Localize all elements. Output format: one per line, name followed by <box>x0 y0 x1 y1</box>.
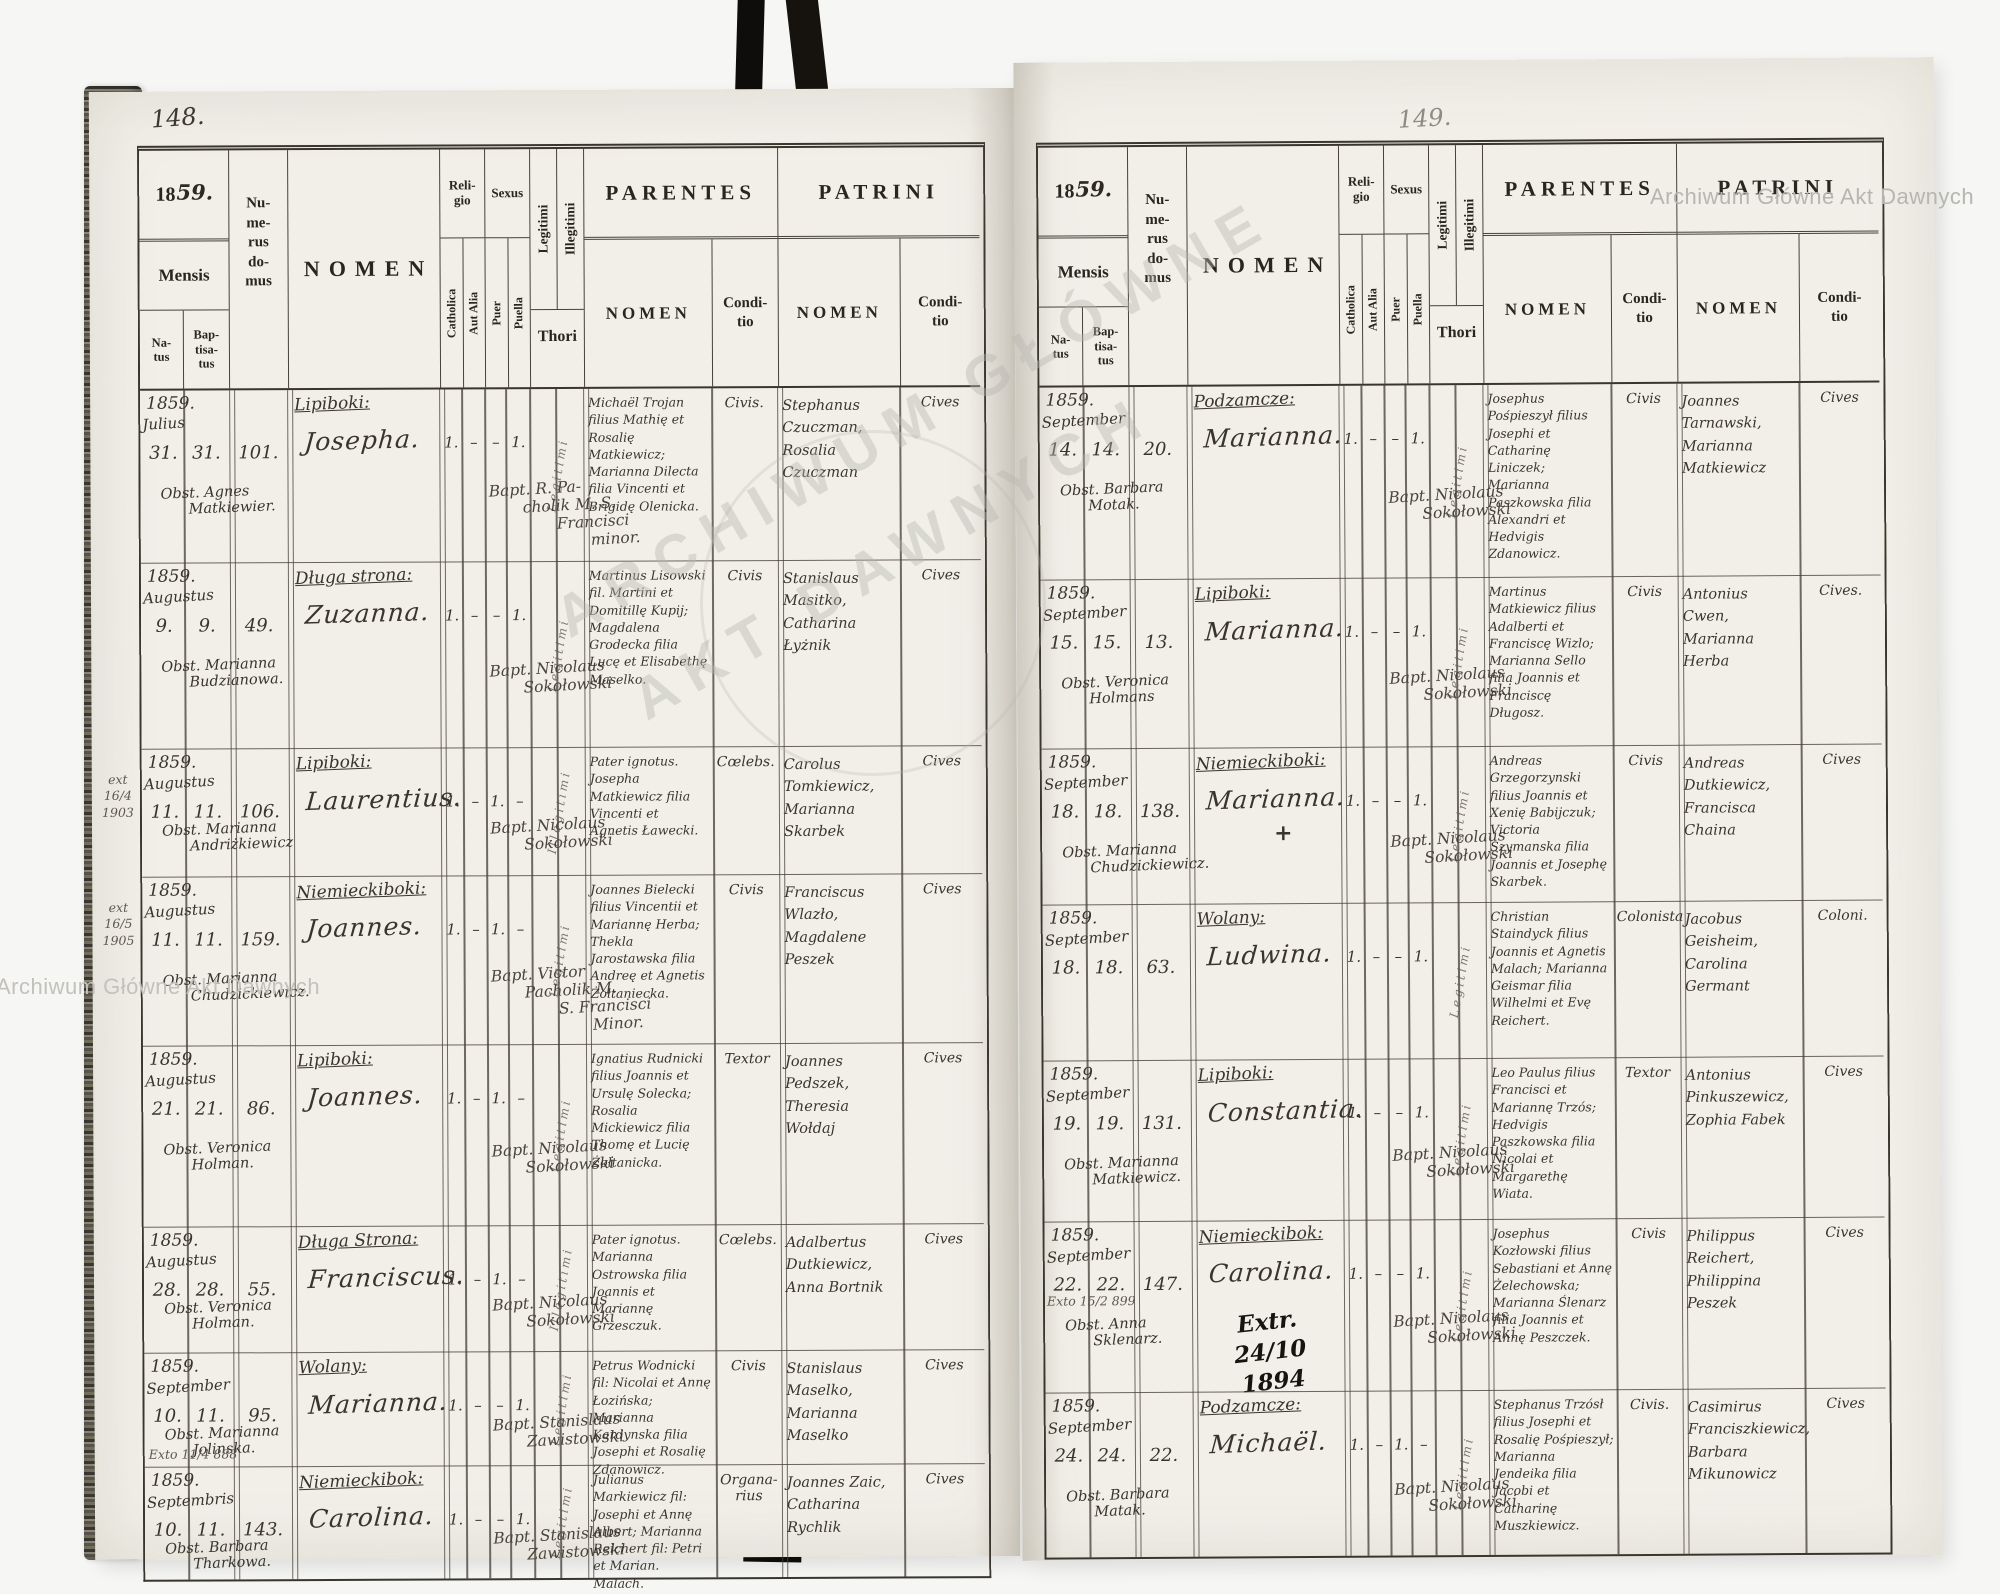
locality-name: Lipiboki: <box>297 1048 373 1071</box>
mark-aut-alia: – <box>463 606 486 624</box>
header-parentes-conditio: Condi-tio <box>1611 235 1677 382</box>
right-page: 149. 1859. Mensis Na-tus Bap-tisa-tus Nu… <box>1013 57 1942 1561</box>
midwife-note: Obst. MariannaMatkiewicz. <box>1064 1152 1294 1185</box>
header-thori: Thori <box>1430 306 1483 383</box>
mark-puella: – <box>510 1270 534 1288</box>
header-year: 1859. <box>139 150 228 241</box>
mark-puella: 1. <box>507 606 531 624</box>
midwife-note: Obst. BarbaraTharkowa. <box>165 1537 395 1570</box>
natus-day: 15. <box>1044 632 1084 653</box>
godparents-condition: Cives <box>908 1357 980 1373</box>
parents-names: Petrus Wodnicki fil: Nicolai et Annę Łoz… <box>592 1356 713 1477</box>
parents-names: Martinus Lisowski fil. Martini et Domiti… <box>589 566 710 687</box>
godparents-names: Stephanus Czuczman, Rosalia Czuczman <box>782 395 896 485</box>
parents-condition: Civis <box>1616 753 1676 769</box>
mark-puella: – <box>508 792 532 810</box>
header-parentes-nomen: NOMEN <box>584 239 713 387</box>
header-patrini-conditio: Condi-tio <box>900 238 980 385</box>
scanned-register-photo: { "document_title": "Parish baptismal re… <box>0 0 2000 1560</box>
mark-puer: – <box>1388 947 1409 965</box>
mark-catholica: 1. <box>445 1510 467 1528</box>
header-sexus: Sexus Puer Puella <box>484 149 530 387</box>
header-numerus-domus: Nu-me- rusdo- mus <box>1128 147 1187 385</box>
entry-month: September <box>1043 771 1127 794</box>
header-year-handwritten: 59. <box>1075 176 1112 201</box>
house-number: 13. <box>1132 632 1186 653</box>
header-natus: Na-tus <box>1039 307 1082 385</box>
entry-month: September <box>1046 1244 1130 1267</box>
register-row: 1859.September18.18.138.Niemieckiboki:Ma… <box>1042 744 1883 905</box>
header-puer: Puer <box>485 238 507 387</box>
register-row: ext16/419031859.Augustus11.11.106.Lipibo… <box>142 745 983 877</box>
header-parentes-conditio: Condi-tio <box>712 239 778 386</box>
entry-year: 1859. <box>1050 1064 1099 1084</box>
mark-catholica: 1. <box>1343 948 1365 966</box>
header-religio: Reli-gio Catholica Aut Alia <box>439 149 485 387</box>
child-name: Marianna. <box>1203 420 1344 454</box>
page-number-right: 149. <box>1397 103 1452 134</box>
godparents-condition: Cives <box>1808 1064 1880 1080</box>
godparents-condition: Cives <box>1810 1396 1882 1412</box>
parents-names: Stephanus Trzósł filius Josephi et Rosal… <box>1494 1395 1615 1534</box>
register-row: 1859.September15.15.13.Lipiboki:Marianna… <box>1041 575 1882 749</box>
entry-year: 1859. <box>148 881 197 901</box>
mark-puer: 1. <box>1391 1435 1412 1453</box>
mark-puella: 1. <box>1408 791 1432 809</box>
godparents-condition: Cives <box>909 1471 981 1487</box>
locality-name: Niemieckibok: <box>1198 1223 1323 1248</box>
header-illegitimi: Illegitimi <box>1455 145 1483 305</box>
mark-puer: – <box>1385 429 1406 447</box>
mark-aut-alia: – <box>462 433 485 451</box>
archive-extract-note: ext16/51905 <box>96 900 140 949</box>
parents-names: Josephus Pośpieszył filius Josephi et Ca… <box>1487 389 1608 562</box>
godparents-condition: Cives <box>907 1050 979 1066</box>
mark-puer: – <box>485 433 506 451</box>
parents-condition: Civis <box>1613 391 1673 407</box>
register-body: 1859.September14.14.20.Podzamcze:Mariann… <box>1039 383 1886 1558</box>
parents-names: Pater ignotus. Marianna Ostrowska filia … <box>592 1230 712 1334</box>
locality-name: Niemieckiboki: <box>1195 750 1326 775</box>
entry-year: 1859. <box>148 753 197 773</box>
entry-year: 1859. <box>1047 583 1096 603</box>
house-number: 159. <box>233 929 287 950</box>
child-name: Michaël. <box>1209 1426 1328 1459</box>
child-name: Carolina. <box>1208 1255 1335 1288</box>
entry-year: 1859. <box>1048 752 1097 772</box>
entry-year: 1859. <box>1045 390 1094 410</box>
baptisatus-day: 11. <box>187 929 229 950</box>
natus-day: 31. <box>143 443 183 464</box>
child-name: Marianna. <box>1205 782 1346 816</box>
mark-aut-alia: – <box>464 920 487 938</box>
parents-condition: Cœlebs. <box>718 1232 778 1248</box>
mark-puella: 1. <box>1409 947 1433 965</box>
entry-year: 1859. <box>1051 1225 1100 1245</box>
baptisatus-day: 22. <box>1090 1274 1132 1295</box>
mark-puella: – <box>509 1089 533 1107</box>
locality-name: Niemieckibok: <box>299 1468 424 1493</box>
godparents-names: Adalbertus Dutkiewicz, Anna Bortnik <box>786 1231 900 1299</box>
parents-condition: Organa- rius <box>719 1472 779 1504</box>
header-patrini: PATRINI NOMEN Condi-tio <box>1676 143 1879 382</box>
locality-name: Podzamcze: <box>1199 1394 1301 1418</box>
page-number-left: 148. <box>150 102 205 134</box>
mark-aut-alia: – <box>464 792 487 810</box>
child-name: Marianna. <box>307 1387 449 1420</box>
godparents-names: Franciscus Wlazło, Magdalene Peszek <box>784 882 898 972</box>
mark-catholica: 1. <box>441 606 463 624</box>
midwife-note: Obst. MariannaBudzianowa. <box>161 655 391 688</box>
mark-catholica: 1. <box>1342 792 1364 810</box>
mark-aut-alia: – <box>466 1270 489 1288</box>
locality-name: Lipiboki: <box>295 751 371 774</box>
parents-names: Julianus Markiewicz fil: Josephi et Annę… <box>593 1470 714 1591</box>
entry-month: Julius <box>142 414 186 434</box>
baptisatus-day: 21. <box>188 1098 230 1119</box>
godparents-names: Casimirus Franciszkiewicz, Barbara Mikun… <box>1688 1396 1803 1487</box>
entry-year: 1859. <box>151 1471 200 1491</box>
godparents-condition: Cives <box>906 753 978 769</box>
header-parentes: PARENTES NOMEN Condi-tio <box>1482 144 1677 383</box>
header-parentes: PARENTES NOMEN Condi-tio <box>583 148 778 387</box>
natus-day: 14. <box>1043 439 1083 460</box>
house-number: 101. <box>231 442 285 463</box>
mark-aut-alia: – <box>466 1396 489 1414</box>
mark-catholica: 1. <box>1344 1104 1366 1122</box>
parents-condition: Civis <box>1619 1226 1679 1242</box>
mark-catholica: 1. <box>1341 623 1363 641</box>
baptism-register-table-right: 1859. Mensis Na-tus Bap-tisa-tus Nu-me- … <box>1036 138 1893 1560</box>
entry-month: September <box>1041 409 1125 432</box>
godparents-names: Antonius Pinkuszewicz, Zophia Fabek <box>1686 1064 1800 1132</box>
header-puer: Puer <box>1384 234 1406 383</box>
natus-day: 18. <box>1045 801 1085 822</box>
header-puella: Puella <box>507 238 530 387</box>
entry-year: 1859. <box>1052 1396 1101 1416</box>
mark-puella: 1. <box>1407 622 1431 640</box>
parents-condition: Civis <box>716 882 776 898</box>
child-name: Ludwina. <box>1206 938 1333 971</box>
entry-year: 1859. <box>150 1357 199 1377</box>
house-number: 86. <box>234 1098 288 1119</box>
mark-catholica: 1. <box>1340 430 1362 448</box>
child-name: Josepha. <box>303 424 421 457</box>
natus-day: 11. <box>145 930 185 951</box>
register-row: 1859.Augustus28.28.55.Długa Strona:Franc… <box>144 1223 985 1353</box>
mark-puer: – <box>486 606 507 624</box>
parents-names: Pater ignotus. Josepha Matkiewicz filia … <box>590 752 710 839</box>
locality-name: Wolany: <box>1196 907 1265 930</box>
house-number: 22. <box>1137 1445 1191 1466</box>
locality-name: Długa strona: <box>295 565 413 590</box>
entry-year: 1859. <box>150 1231 199 1251</box>
entry-month: September <box>1045 1083 1129 1106</box>
legitimacy-note: Legitimi <box>1433 903 1488 1058</box>
baptisatus-day: 14. <box>1085 439 1127 460</box>
godparents-condition: Cives <box>1803 390 1875 406</box>
header-legitimi: Legitimi <box>530 149 557 309</box>
child-name: Joannes. <box>305 911 423 944</box>
mark-aut-alia: – <box>1367 1265 1390 1283</box>
archive-extract-note: ext16/41903 <box>96 772 140 821</box>
header-year-printed: 18 <box>1054 180 1074 203</box>
mark-catholica: 1. <box>1346 1436 1368 1454</box>
header-catholica: Catholica <box>1339 235 1361 384</box>
parents-condition: Civis <box>1615 584 1675 600</box>
entry-month: September <box>146 1375 230 1398</box>
godparents-condition: Cives <box>908 1231 980 1247</box>
header-numerus-domus: Nu-me- rusdo- mus <box>229 150 288 388</box>
mark-puer: – <box>1390 1264 1411 1282</box>
register-row: 1859.September19.19.131.Lipiboki:Constan… <box>1044 1056 1885 1222</box>
header-thori: Thori <box>531 310 584 387</box>
baptisatus-day: 9. <box>186 615 228 636</box>
godparents-names: Philippus Reichert, Philippina Peszek <box>1687 1225 1802 1316</box>
parents-names: Leo Paulus filius Francisci et Mariannę … <box>1492 1063 1613 1202</box>
entry-month: Septembris <box>147 1489 235 1512</box>
header-dates-left: 1859. Mensis Na-tus Bap-tisa-tus <box>1038 147 1129 386</box>
child-name: Franciscus. <box>307 1260 466 1294</box>
entry-month: Augustus <box>145 1250 217 1272</box>
parents-condition: Civis. <box>1620 1397 1680 1413</box>
parents-names: Josephus Kozłowski filius Sebastiani et … <box>1493 1224 1614 1345</box>
mark-aut-alia: – <box>1362 430 1385 448</box>
header-nomen: NOMEN <box>1186 146 1339 385</box>
table-header: 1859. Mensis Na-tus Bap-tisa-tus Nu-me- … <box>1038 143 1879 388</box>
header-nomen: NOMEN <box>287 149 440 388</box>
godparents-names: Andreas Dutkiewicz, Francisca Chaina <box>1684 752 1799 843</box>
natus-day: 22. <box>1048 1274 1088 1295</box>
left-page: 148. 1859. Mensis Na-tus Bap-tisa-tus Nu… <box>89 88 1020 1560</box>
entry-year: 1859. <box>149 1050 198 1070</box>
godparents-names: Joannes Zaic, Catharina Rychlik <box>787 1471 901 1539</box>
locality-name: Wolany: <box>298 1356 367 1379</box>
godparents-names: Joannes Tarnawski, Marianna Matkiewicz <box>1681 390 1796 481</box>
mark-catholica: 1. <box>1345 1265 1367 1283</box>
house-number: 131. <box>1135 1113 1189 1134</box>
header-year-handwritten: 59. <box>176 179 213 204</box>
locality-name: Lipiboki: <box>1197 1063 1273 1086</box>
mark-puer: – <box>1389 1103 1410 1121</box>
parents-condition: Colonista <box>1617 909 1677 925</box>
child-name: Joannes. <box>306 1080 424 1113</box>
header-religio: Reli-gio Catholica Aut Alia <box>1338 146 1384 384</box>
entry-month: Augustus <box>143 772 215 794</box>
parents-names: Christian Staindyck filius Joannis et Ag… <box>1491 907 1612 1028</box>
house-number: 63. <box>1134 957 1188 978</box>
archive-extract-note: Exto 11/4 888 <box>149 1446 319 1463</box>
register-row: Exto 15/2 8991859.September22.22.147.Nie… <box>1045 1217 1886 1393</box>
register-row: 1859.September18.18.63.Wolany:Ludwina.1.… <box>1043 900 1884 1061</box>
mark-catholica: 1. <box>444 1270 466 1288</box>
natus-day: 24. <box>1049 1445 1089 1466</box>
godparents-names: Carolus Tomkiewicz, Marianna Skarbek <box>784 754 898 844</box>
midwife-note: Obst. AgnesMatkiewier. <box>161 482 391 515</box>
baptisatus-day: 31. <box>185 442 227 463</box>
baptisatus-day: 24. <box>1091 1445 1133 1466</box>
header-illegitimi: Illegitimi <box>556 149 584 309</box>
mark-puer: 1. <box>487 920 508 938</box>
baptisatus-day: 18. <box>1087 801 1129 822</box>
parents-condition: Civis. <box>714 395 774 411</box>
mark-puella: 1. <box>1410 1103 1434 1121</box>
godparents-names: Stanislaus Maselko, Marianna Maselko <box>786 1357 900 1447</box>
header-patrini-nomen: NOMEN <box>1677 234 1800 382</box>
natus-day: 9. <box>144 616 184 637</box>
header-patrini-nomen: NOMEN <box>778 238 901 386</box>
midwife-note: Obst. MariannaAndriżkiewicz <box>162 819 392 852</box>
header-year-printed: 18 <box>155 183 175 206</box>
mark-aut-alia: – <box>465 1089 488 1107</box>
parents-condition: Civis <box>718 1358 778 1374</box>
mark-aut-alia: – <box>1364 792 1387 810</box>
midwife-note: Obst. VeronicaHolman. <box>164 1297 394 1330</box>
mark-catholica: 1. <box>442 792 464 810</box>
locality-name: Podzamcze: <box>1193 388 1295 412</box>
mark-puella: – <box>1412 1435 1436 1453</box>
locality-name: Lipiboki: <box>294 392 370 415</box>
baptisatus-day: 19. <box>1089 1113 1131 1134</box>
header-mensis: Mensis <box>1039 238 1128 308</box>
header-puella: Puella <box>1406 234 1429 383</box>
header-mensis: Mensis <box>139 241 228 310</box>
godparents-names: Joannes Pedszek, Theresia Wołdaj <box>785 1050 899 1140</box>
house-number: 147. <box>1136 1274 1190 1295</box>
entry-month: Augustus <box>144 900 216 922</box>
mark-catholica: 1. <box>442 920 464 938</box>
midwife-note: Obst. MariannaChudzickiewicz. <box>1062 840 1292 873</box>
natus-day: 18. <box>1046 957 1086 978</box>
mark-puella: 1. <box>1411 1264 1435 1282</box>
house-number: 138. <box>1133 801 1187 822</box>
parents-names: Andreas Grzegorzynski filius Joannis et … <box>1490 751 1611 890</box>
entry-month: September <box>1042 602 1126 625</box>
mark-aut-alia: – <box>1368 1436 1391 1454</box>
midwife-note: Obst. BarbaraMotak. <box>1060 478 1290 511</box>
parents-condition: Civis <box>715 568 775 584</box>
header-group-dates: 1859. Mensis Na-tus Bap-tisa-tus Nu-me- … <box>139 150 288 389</box>
header-catholica: Catholica <box>440 238 462 387</box>
register-row: 1859.Augustus9.9.49.Długa strona:Zuzanna… <box>141 559 982 749</box>
archive-extract-note: Exto 15/2 899 <box>1047 1293 1207 1310</box>
header-parentes-nomen: NOMEN <box>1483 235 1612 383</box>
header-legitimi: Legitimi <box>1429 145 1456 305</box>
child-name: Laurentius. <box>305 782 463 816</box>
header-legitimacy: Legitimi Illegitimi Thori <box>529 149 584 387</box>
register-row: 1859.September14.14.20.Podzamcze:Mariann… <box>1039 383 1880 580</box>
natus-day: 21. <box>146 1099 186 1120</box>
header-group-dates: 1859. Mensis Na-tus Bap-tisa-tus Nu-me- … <box>1038 147 1187 386</box>
baptism-register-table-left: 1859. Mensis Na-tus Bap-tisa-tus Nu-me- … <box>137 142 991 1582</box>
child-name: Carolina. <box>308 1501 435 1534</box>
header-patrini-conditio: Condi-tio <box>1799 234 1879 381</box>
register-row: 1859.Septembris10.11.143.Niemieckibok:Ca… <box>145 1463 985 1580</box>
mark-puer: 1. <box>487 792 508 810</box>
parents-names: Martinus Matkiewicz filius Adalberti et … <box>1489 582 1610 721</box>
child-name: Marianna. <box>1204 613 1345 647</box>
entry-year: 1859. <box>1049 908 1098 928</box>
midwife-note: Obst. BarbaraMatak. <box>1066 1484 1296 1517</box>
header-baptisatus: Bap-tisa-tus <box>184 310 229 388</box>
godparents-condition: Cives <box>1806 752 1878 768</box>
godparents-names: Antonius Cwen, Marianna Herba <box>1683 583 1798 674</box>
godparents-names: Jacobus Geisheim, Carolina Germant <box>1685 908 1800 999</box>
mark-puer: 1. <box>488 1089 509 1107</box>
entry-month: September <box>1047 1415 1131 1438</box>
child-name: Constantia. <box>1207 1094 1365 1128</box>
entry-year: 1859. <box>147 567 196 587</box>
header-year: 1859. <box>1038 147 1128 239</box>
register-body: 1859.Julius31.31.101.Lipiboki:Josepha.Ob… <box>140 387 985 1580</box>
house-number: 49. <box>232 615 286 636</box>
godparents-condition: Coloni. <box>1807 908 1879 924</box>
midwife-note: Obst. VeronicaHolmans <box>1061 671 1291 704</box>
legitimacy-note-text: Legitimi <box>1447 943 1473 1019</box>
parents-names: Michaël Trojan filius Mathię et Rosalię … <box>588 393 709 514</box>
baptisatus-day: 18. <box>1088 957 1130 978</box>
later-extract-stamp: Extr.24/101894 <box>1181 1298 1360 1406</box>
header-patrini: PATRINI NOMEN Condi-tio <box>777 147 980 386</box>
entry-year: 1859. <box>146 394 195 414</box>
mark-aut-alia: – <box>467 1510 490 1528</box>
baptisatus-day: 15. <box>1086 632 1128 653</box>
godparents-condition: Cives <box>1809 1225 1881 1241</box>
parents-condition: Cœlebs. <box>716 754 776 770</box>
register-row: ext16/519051859.Augustus11.11.159.Niemie… <box>142 873 983 1046</box>
register-row: 1859.Augustus21.21.86.Lipiboki:Joannes.O… <box>143 1042 984 1227</box>
midwife-note: Obst. MariannaChudzickiewicz. <box>163 969 393 1002</box>
header-legitimacy: Legitimi Illegitimi Thori <box>1428 145 1483 383</box>
header-natus: Na-tus <box>140 311 183 389</box>
mark-puella: 1. <box>506 433 530 451</box>
parents-condition: Textor <box>717 1051 777 1067</box>
natus-day: 19. <box>1047 1113 1087 1134</box>
parents-names: Ignatius Rudnicki filius Joannis et Ursu… <box>591 1049 712 1170</box>
godparents-condition: Cives <box>905 567 977 583</box>
godparents-names: Stanislaus Masitko, Catharina Łyżnik <box>783 568 897 658</box>
mark-puella: 1. <box>1406 429 1430 447</box>
midwife-note: Obst. VeronicaHolman. <box>163 1138 393 1171</box>
locality-name: Długa Strona: <box>297 1229 418 1254</box>
mark-puer: – <box>1387 791 1408 809</box>
entry-month: September <box>1044 927 1128 950</box>
register-row: Exto 11/4 8881859.September10.11.95.Wola… <box>144 1349 984 1467</box>
child-name: Zuzanna. <box>304 597 431 630</box>
header-sexus: Sexus Puer Puella <box>1383 145 1429 383</box>
header-dates-left: 1859. Mensis Na-tus Bap-tisa-tus <box>139 150 230 388</box>
parents-names: Joannes Bielecki filius Vincentii et Mar… <box>590 880 711 1001</box>
entry-month: Augustus <box>143 586 215 608</box>
mark-catholica: 1. <box>444 1396 466 1414</box>
entry-month: Augustus <box>145 1069 217 1091</box>
register-row: 1859.Julius31.31.101.Lipiboki:Josepha.Ob… <box>140 387 981 563</box>
header-aut-alia: Aut Alia <box>1361 235 1384 384</box>
mark-catholica: 1. <box>440 433 462 451</box>
godparents-condition: Cives <box>906 881 978 897</box>
mark-aut-alia: – <box>1365 948 1388 966</box>
header-aut-alia: Aut Alia <box>462 238 485 387</box>
godparents-condition: Cives. <box>1805 583 1877 599</box>
mark-puer: 1. <box>489 1270 510 1288</box>
locality-name: Niemieckiboki: <box>296 878 427 903</box>
locality-name: Lipiboki: <box>1194 582 1270 605</box>
mark-catholica: 1. <box>443 1089 465 1107</box>
house-number: 20. <box>1131 439 1185 460</box>
mark-puer: – <box>1386 622 1407 640</box>
register-row: 1859.September24.24.22.Podzamcze:Michaël… <box>1046 1388 1887 1558</box>
table-header: 1859. Mensis Na-tus Bap-tisa-tus Nu-me- … <box>139 147 980 391</box>
